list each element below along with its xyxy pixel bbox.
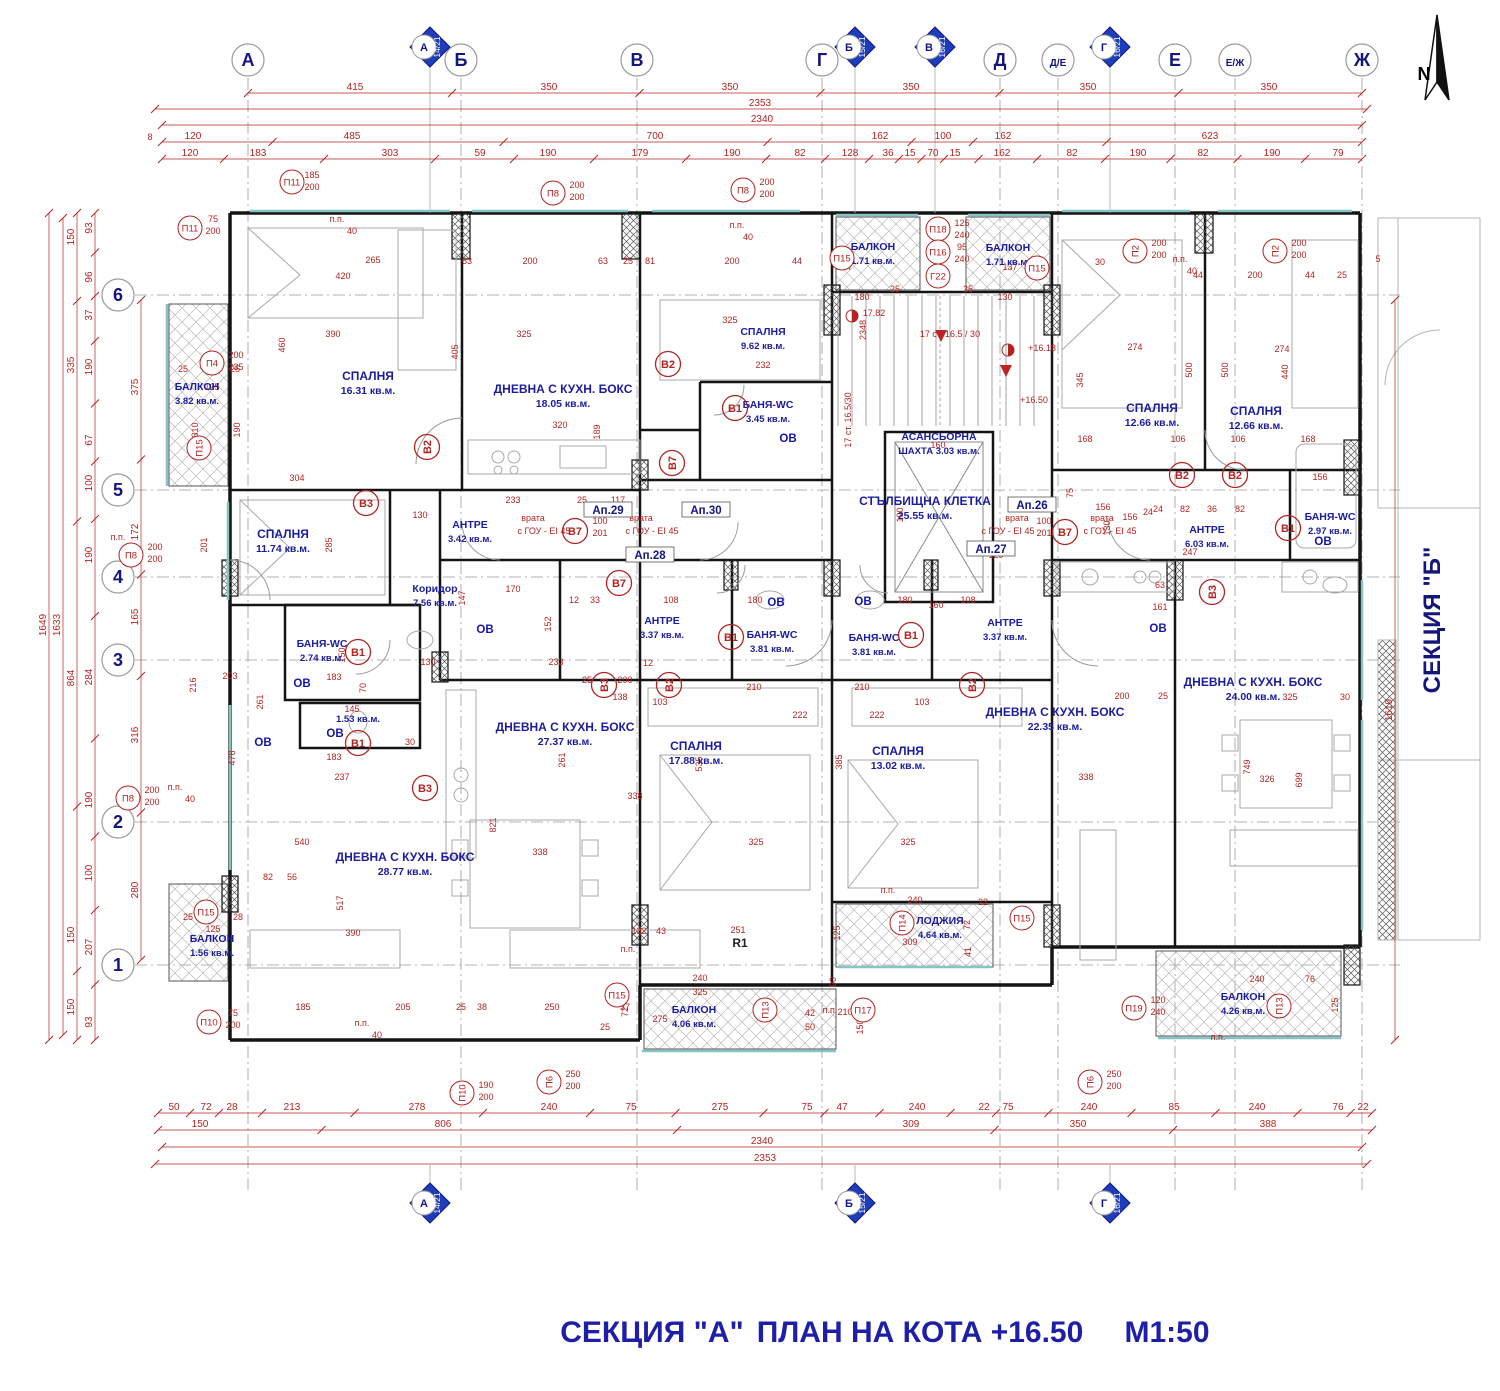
fixture-tag: В3 xyxy=(418,783,432,795)
dim-inner-label: 82 xyxy=(1235,504,1245,514)
dim-inner-label: 235 xyxy=(228,362,243,372)
dim-row-label: 76 xyxy=(1332,1102,1344,1113)
apartment-label-group: Ап.27 xyxy=(967,541,1015,556)
fixture-tag-group: В2 xyxy=(1170,463,1195,488)
room-label-group: СПАЛНЯ12.66 кв.м. xyxy=(1125,401,1180,429)
axis-label-left: 6 xyxy=(113,285,123,305)
dim-inner-label: 325 xyxy=(722,315,737,325)
dim-inner-label: 201 xyxy=(592,528,607,538)
dim-inner-label: 40 xyxy=(185,794,195,804)
dim-row-label: 150 xyxy=(192,1119,209,1130)
panel-tag: П6 xyxy=(1086,1076,1097,1088)
dim-row-label: 240 xyxy=(1249,1102,1266,1113)
dim-inner-label: 56 xyxy=(287,872,297,882)
dim-inner-label: 390 xyxy=(325,329,340,339)
panel-tag-group: П6 xyxy=(537,1070,561,1094)
dim-row-label: 75 xyxy=(1002,1102,1014,1113)
dim-row-label: 22 xyxy=(978,1102,990,1113)
apartment-label-group: Ап.29 xyxy=(584,502,632,517)
dim-row-label: 75 xyxy=(801,1102,813,1113)
section-marker: Б15/21 xyxy=(835,1165,875,1223)
section-marker: Б15/21 xyxy=(835,27,875,213)
dim-inner-label: 125 xyxy=(832,925,842,940)
dim-inner-label: 40 xyxy=(372,1030,382,1040)
dim-inner-label: 325 xyxy=(516,329,531,339)
room-area-label: 3.82 кв.м. xyxy=(175,396,219,407)
dim-inner-label: 232 xyxy=(755,360,770,370)
dim-col-label: 165 xyxy=(130,608,141,625)
dim-inner-label: 12 xyxy=(569,595,579,605)
ov-label: ОВ xyxy=(779,433,796,445)
dim-inner-label: 222 xyxy=(869,710,884,720)
room-label: ДНЕВНА С КУХН. БОКС xyxy=(496,720,635,734)
dimension-row: 2353 xyxy=(151,1153,1371,1168)
dim-inner-label: 265 xyxy=(365,255,380,265)
dim-inner-label: п.п. xyxy=(881,885,896,895)
dim-col-label: 93 xyxy=(84,222,95,234)
panel-tag-group: П15 xyxy=(187,436,211,460)
dim-col-label: 150 xyxy=(66,228,77,245)
dim-inner-label: 2348 xyxy=(858,320,868,340)
dim-inner-label: 200 xyxy=(565,1081,580,1091)
room-label: АНТРЕ xyxy=(987,617,1023,629)
section-b-label: СЕКЦИЯ "Б" xyxy=(1419,547,1446,694)
dim-col-label: 1649 xyxy=(38,613,49,636)
dim-inner-label: 200 xyxy=(1151,250,1166,260)
room-label: СПАЛНЯ xyxy=(740,326,785,338)
room-label: ДНЕВНА С КУХН. БОКС xyxy=(1184,675,1323,689)
title-plan: ПЛАН НА КОТА +16.50 xyxy=(757,1316,1084,1349)
dim-inner-label: 240 xyxy=(1150,1007,1165,1017)
dim-inner-label: врата xyxy=(629,513,653,523)
room-area-label: 22.35 кв.м. xyxy=(1028,721,1083,733)
room-area-label: 17.88 кв.м. xyxy=(669,755,724,767)
room-area-label: 4.06 кв.м. xyxy=(672,1019,716,1030)
dim-col-label: 375 xyxy=(130,378,141,395)
dimension-column: 9396371906710019028419010020793 xyxy=(84,209,99,1044)
dim-inner-label: 420 xyxy=(335,271,350,281)
fixture-tag-group: В1 xyxy=(899,623,924,648)
dim-row-label: 700 xyxy=(647,131,664,142)
dim-inner-label: 161 xyxy=(1152,602,1167,612)
dim-inner-label: 168 xyxy=(1300,434,1315,444)
room-area-label: ШАХТА 3.03 кв.м. xyxy=(898,446,979,457)
fixture-tag-group: В3 xyxy=(1200,580,1225,605)
dim-inner-label: 200 xyxy=(522,256,537,266)
panel-tag-group: П10 xyxy=(450,1081,474,1105)
axis-label-left: 5 xyxy=(113,480,123,500)
section-marker-ref: 16/21 xyxy=(1112,1192,1122,1214)
dim-inner-label: 30 xyxy=(1340,692,1350,702)
room-area-label: 3.45 кв.м. xyxy=(746,414,790,425)
room-label-group: СПАЛНЯ13.02 кв.м. xyxy=(871,744,926,772)
dim-row-label: 15 xyxy=(949,148,961,159)
dim-inner-label: 103 xyxy=(652,697,667,707)
dim-row-label: 100 xyxy=(935,131,952,142)
room-area-label: 7.56 кв.м. xyxy=(413,598,457,609)
dim-row-label: 128 xyxy=(842,148,859,159)
dim-inner-label: 210 xyxy=(837,1007,852,1017)
dim-inner-label: п.п. xyxy=(168,782,183,792)
axis-label-left: 4 xyxy=(113,567,123,587)
dim-inner-label: 44 xyxy=(792,256,802,266)
dim-inner-label: 821 xyxy=(488,817,498,832)
panel-tag-group: П16 xyxy=(926,240,950,264)
apartment-label: Ап.27 xyxy=(975,544,1006,556)
dim-inner-label: 24 xyxy=(1153,504,1163,514)
dim-inner-label: 200 xyxy=(205,226,220,236)
dim-inner-label: 200 xyxy=(144,797,159,807)
room-label: СПАЛНЯ xyxy=(257,527,309,541)
dim-col-label: 172 xyxy=(130,523,141,540)
dim-inner-label: 25 xyxy=(456,1002,466,1012)
dim-inner-label: 75 xyxy=(228,1008,238,1018)
room-label-group: ДНЕВНА С КУХН. БОКС28.77 кв.м. xyxy=(336,850,475,878)
dim-inner-label: 82 xyxy=(1180,504,1190,514)
panel-tag: П6 xyxy=(545,1076,556,1088)
dim-inner-label: 338 xyxy=(1078,772,1093,782)
dim-inner-label: 460 xyxy=(277,337,287,352)
dim-inner-label: 81 xyxy=(645,256,655,266)
dim-row-label: 162 xyxy=(872,131,889,142)
room-label: ДНЕВНА С КУХН. БОКС xyxy=(494,382,633,396)
dim-inner-label: 70 xyxy=(358,683,368,693)
room-area-label: 28.77 кв.м. xyxy=(378,866,433,878)
dim-inner-label: 261 xyxy=(557,752,567,767)
dim-inner-label: 200 xyxy=(1106,1081,1121,1091)
dim-inner-label: 25 xyxy=(582,675,592,685)
room-area-label: 3.81 кв.м. xyxy=(750,644,794,655)
dim-inner-label: 147 xyxy=(457,590,467,605)
dim-inner-label: 200 xyxy=(478,1092,493,1102)
panel-tag-group: П19 xyxy=(1122,996,1146,1020)
panel-tag: П13 xyxy=(1275,997,1286,1014)
room-label-group: БАНЯ-WC3.45 кв.м. xyxy=(743,399,794,425)
dim-inner-label: 749 xyxy=(1242,759,1252,774)
dim-inner-label: 233 xyxy=(505,495,520,505)
panel-tag-group: П18 xyxy=(926,217,950,241)
room-label: БАЛКОН xyxy=(190,933,234,945)
dim-inner-label: 183 xyxy=(326,672,341,682)
fixture-tag-group: В7 xyxy=(1053,520,1078,545)
outer-walls xyxy=(230,213,1360,1040)
room-label: АНТРЕ xyxy=(1189,524,1225,536)
axis-label-top: Е/Ж xyxy=(1226,58,1245,69)
section-marker-letter: А xyxy=(420,1198,428,1210)
section-marker-letter: А xyxy=(420,42,428,54)
dim-inner-label: 240 xyxy=(954,230,969,240)
room-label-group: СПАЛНЯ12.66 кв.м. xyxy=(1229,404,1284,432)
fixture-tag: В7 xyxy=(612,578,626,590)
dim-inner-label: 40 xyxy=(743,232,753,242)
apartment-label: Ап.28 xyxy=(634,550,666,562)
panel-tag: П10 xyxy=(200,1018,217,1029)
dim-inner-label: 210 xyxy=(854,682,869,692)
dim-inner-label: 200 xyxy=(1291,250,1306,260)
panel-tag: П2 xyxy=(1131,245,1142,257)
dim-row-label: 59 xyxy=(474,148,486,159)
dim-row-label: 415 xyxy=(347,82,364,93)
room-area-label: 24.00 кв.м. xyxy=(1226,691,1281,703)
room-label: СПАЛНЯ xyxy=(1126,401,1178,415)
dim-col-label: 207 xyxy=(84,938,95,955)
ov-label: ОВ xyxy=(476,624,493,636)
dim-inner-label: 25 xyxy=(178,364,188,374)
panel-tag: П14 xyxy=(898,914,909,931)
dim-inner-label: 106 xyxy=(1170,434,1185,444)
panel-tag: П15 xyxy=(1028,264,1045,275)
dim-inner-label: 25 xyxy=(890,284,900,294)
dim-inner-label: 285 xyxy=(324,537,334,552)
panel-tag-group: П2 xyxy=(1263,239,1287,263)
dim-inner-label: 103 xyxy=(914,697,929,707)
room-label: АНТРЕ xyxy=(452,519,488,531)
room-area-label: 4.64 кв.м. xyxy=(918,930,962,941)
dim-inner-label: 200 xyxy=(1114,691,1129,701)
fixture-tag-group: В1 xyxy=(346,640,371,665)
north-arrow-icon: N xyxy=(1418,15,1450,100)
dim-inner-label: 43 xyxy=(656,926,666,936)
axis-label-top: Е xyxy=(1169,50,1181,70)
dim-inner-label: 95 xyxy=(957,242,967,252)
dim-inner-label: 90 xyxy=(828,977,838,987)
dim-inner-label: 345 xyxy=(1075,372,1085,387)
dim-row-label: 309 xyxy=(903,1119,920,1130)
dim-inner-label: 106 xyxy=(1230,434,1245,444)
dim-inner-label: 82 xyxy=(263,872,273,882)
dim-row-label: 82 xyxy=(1197,148,1209,159)
dimension-row: 2340 xyxy=(158,114,1366,129)
dim-inner-label: п.п. xyxy=(730,220,745,230)
panel-tag-group: П4 xyxy=(200,351,224,375)
dim-row-label: 70 xyxy=(927,148,939,159)
dim-inner-label: 100 xyxy=(1036,516,1051,526)
dim-inner-label: 40 xyxy=(347,226,357,236)
room-label: БАЛКОН xyxy=(851,241,895,253)
dim-inner-label: 405 xyxy=(450,344,460,359)
dim-row-label: 190 xyxy=(1130,148,1147,159)
panel-tag: П16 xyxy=(929,248,946,259)
axis-label-left: 3 xyxy=(113,650,123,670)
dim-row-label: 120 xyxy=(185,131,202,142)
dim-inner-label: 200 xyxy=(228,350,243,360)
room-label-group: БАНЯ-WC3.81 кв.м. xyxy=(747,629,798,655)
room-label: Коридор xyxy=(412,583,457,595)
dim-row-label: 623 xyxy=(1202,131,1219,142)
panel-tag: П4 xyxy=(206,359,218,370)
dim-inner-label: п.п. xyxy=(1173,254,1188,264)
room-label-group: АНТРЕ3.37 кв.м. xyxy=(640,615,684,641)
dim-inner-label: 130 xyxy=(412,510,427,520)
north-label: N xyxy=(1418,64,1431,84)
room-label: БАЛКОН xyxy=(672,1004,716,1016)
axis-label-top: Г xyxy=(817,50,827,70)
room-label: БАНЯ-WC xyxy=(743,399,794,411)
dim-inner-label: 63 xyxy=(1155,580,1165,590)
panel-tag: П10 xyxy=(458,1084,469,1101)
section-marker: Г16/21 xyxy=(1090,1165,1130,1223)
dimension-row: 150806309350388 xyxy=(154,1119,1376,1134)
section-marker-ref: 16/21 xyxy=(1112,36,1122,58)
room-label: СПАЛНЯ xyxy=(872,744,924,758)
room-label: БАНЯ-WC xyxy=(1305,511,1356,523)
dim-inner-label: 8 xyxy=(147,132,152,142)
fixture-tag: В1 xyxy=(351,738,365,750)
section-marker: В16/21 xyxy=(915,27,955,213)
dim-inner-label: 325 xyxy=(900,837,915,847)
dim-inner-label: 5 xyxy=(1375,254,1380,264)
dim-row-label: 388 xyxy=(1260,1119,1277,1130)
dim-row-label: 162 xyxy=(994,148,1011,159)
apartment-label: Ап.29 xyxy=(592,505,623,517)
fixture-tag-group: В7 xyxy=(607,571,632,596)
floor-plan-page: АБВГДД/ЕЕЕ/ЖЖ654321А14/21Б15/21В16/21Г16… xyxy=(0,0,1500,1391)
dim-inner-label: п.п. xyxy=(1211,1032,1226,1042)
dim-row-label: 240 xyxy=(1081,1102,1098,1113)
dim-inner-label: с ГОУ - EI 45 xyxy=(626,526,679,536)
dim-inner-label: 17.82 xyxy=(863,308,886,318)
dim-inner-label: 185 xyxy=(304,170,319,180)
dim-inner-label: 205 xyxy=(395,1002,410,1012)
fixture-tag: В1 xyxy=(724,632,738,644)
room-label-group: 1.53 кв.м. xyxy=(336,714,380,725)
section-marker-ref: 14/21 xyxy=(432,1192,442,1214)
dim-inner-label: 250 xyxy=(1106,1069,1121,1079)
dim-inner-label: 261 xyxy=(255,694,265,709)
room-label: СПАЛНЯ xyxy=(1230,404,1282,418)
dim-inner-label: 250 xyxy=(544,1002,559,1012)
fixture-tag: В2 xyxy=(967,678,979,692)
dim-row-label: 190 xyxy=(1264,148,1281,159)
dim-col-label: 37 xyxy=(84,309,95,321)
fixture-tag: В7 xyxy=(568,526,582,538)
room-label-group: СПАЛНЯ16.31 кв.м. xyxy=(341,369,396,397)
dim-col-label: 1619 xyxy=(1384,698,1395,721)
dim-row-label: 2353 xyxy=(749,98,772,109)
dim-inner-label: 138 xyxy=(612,692,627,702)
room-area-label: 1.71 кв.м. xyxy=(986,257,1030,268)
room-area-label: 1.56 кв.м. xyxy=(190,948,234,959)
panel-tag-group: П17 xyxy=(851,998,875,1022)
panel-tag: П15 xyxy=(1013,914,1030,925)
dim-inner-label: 325 xyxy=(748,837,763,847)
dimension-row: 120485700162100162623 xyxy=(158,131,1366,146)
panel-tag: П8 xyxy=(737,186,749,197)
panel-tag-group: П10 xyxy=(197,1010,221,1034)
dim-inner-label: 25 xyxy=(183,912,193,922)
ov-label: ОВ xyxy=(254,737,271,749)
fixture-tag: В7 xyxy=(1058,527,1072,539)
axis-label-top: Д xyxy=(994,50,1007,70)
section-marker-letter: Б xyxy=(845,1198,853,1210)
apartment-label: Ап.26 xyxy=(1016,500,1047,512)
dim-row-label: 183 xyxy=(250,148,267,159)
panel-tag: Г22 xyxy=(930,272,946,283)
dim-inner-label: 200 xyxy=(304,182,319,192)
dim-inner-label: 145 xyxy=(344,704,359,714)
dim-inner-label: 130 xyxy=(420,657,435,667)
fixture-tag: В3 xyxy=(1207,585,1219,599)
section-marker-letter: Б xyxy=(845,42,853,54)
panel-tag: П13 xyxy=(761,1001,772,1018)
dim-col-label: 96 xyxy=(84,271,95,283)
dim-inner-label: 50 xyxy=(805,1022,815,1032)
dim-row-label: 350 xyxy=(1261,82,1278,93)
dim-inner-label: 240 xyxy=(954,254,969,264)
dim-row-label: 2340 xyxy=(751,114,774,125)
dim-row-label: 2340 xyxy=(751,1136,774,1147)
dim-inner-label: п.п. xyxy=(823,1005,838,1015)
dim-inner-label: 201 xyxy=(199,537,209,552)
title-section: СЕКЦИЯ "А" xyxy=(560,1316,743,1349)
dim-row-label: 350 xyxy=(1070,1119,1087,1130)
floor-plan-drawing: АБВГДД/ЕЕЕ/ЖЖ654321А14/21Б15/21В16/21Г16… xyxy=(0,0,1500,1391)
dim-inner-label: 200 xyxy=(225,1020,240,1030)
fixture-tag-group: В1 xyxy=(346,731,371,756)
dim-inner-label: 275 xyxy=(652,1014,667,1024)
dim-row-label: 190 xyxy=(724,148,741,159)
fixture-tag-group: В3 xyxy=(354,491,379,516)
dimension-row: 2340 xyxy=(158,1136,1366,1151)
dim-row-label: 275 xyxy=(712,1102,729,1113)
panel-tag: П8 xyxy=(125,551,137,562)
room-area-label: 3.42 кв.м. xyxy=(448,534,492,545)
dim-row-label: 2353 xyxy=(754,1153,777,1164)
panel-tag: П8 xyxy=(122,794,134,805)
dimension-row: 415350350350350350 xyxy=(244,82,1366,97)
fixture-tag-group: В2 xyxy=(960,673,985,698)
axis-label-top: А xyxy=(242,50,255,70)
dim-inner-label: 168 xyxy=(1077,434,1092,444)
dim-inner-label: 25 xyxy=(1158,691,1168,701)
panel-tag-group: П8 xyxy=(731,178,755,202)
room-area-label: 16.31 кв.м. xyxy=(341,385,396,397)
panel-tag-group: П6 xyxy=(1078,1070,1102,1094)
dim-col-label: 100 xyxy=(84,864,95,881)
dim-inner-label: 156 xyxy=(1312,472,1327,482)
dim-inner-label: 699 xyxy=(1294,772,1304,787)
room-label-group: Коридор7.56 кв.м. xyxy=(412,583,457,609)
dim-col-label: 190 xyxy=(84,546,95,563)
dim-inner-label: 201 xyxy=(1036,528,1051,538)
dim-inner-label: врата xyxy=(1005,513,1029,523)
room-label-group: АНТРЕ3.37 кв.м. xyxy=(983,617,1027,643)
dim-row-label: 120 xyxy=(182,148,199,159)
fixture-tag: В2 xyxy=(422,440,434,454)
dim-inner-label: 25 xyxy=(623,256,633,266)
apartment-label-group: Ап.30 xyxy=(682,502,730,517)
dim-inner-label: п.п. xyxy=(111,532,126,542)
room-label: БАНЯ-WC xyxy=(297,638,348,650)
dim-inner-label: 38 xyxy=(477,1002,487,1012)
panel-tag-group: Г22 xyxy=(926,264,950,288)
fixture-tag-group: В2 xyxy=(656,352,681,377)
fixture-tag: В1 xyxy=(351,647,365,659)
dim-row-label: 213 xyxy=(284,1102,301,1113)
dim-inner-label: 25 xyxy=(1337,270,1347,280)
dim-inner-label: 44 xyxy=(1305,270,1315,280)
dim-inner-label: 338 xyxy=(627,791,642,801)
axis-label-left: 1 xyxy=(113,955,123,975)
panel-tag-group: П8 xyxy=(541,181,565,205)
fixture-tag-group: В1 xyxy=(1276,516,1301,541)
dim-inner-label: 24 xyxy=(1143,507,1153,517)
room-area-label: 2.74 кв.м. xyxy=(300,653,344,664)
panel-tag: П11 xyxy=(284,178,301,189)
dimension-column: 150335864150150 xyxy=(66,209,81,1044)
dim-inner-label: 309 xyxy=(902,937,917,947)
section-marker: А14/21 xyxy=(410,1165,450,1223)
